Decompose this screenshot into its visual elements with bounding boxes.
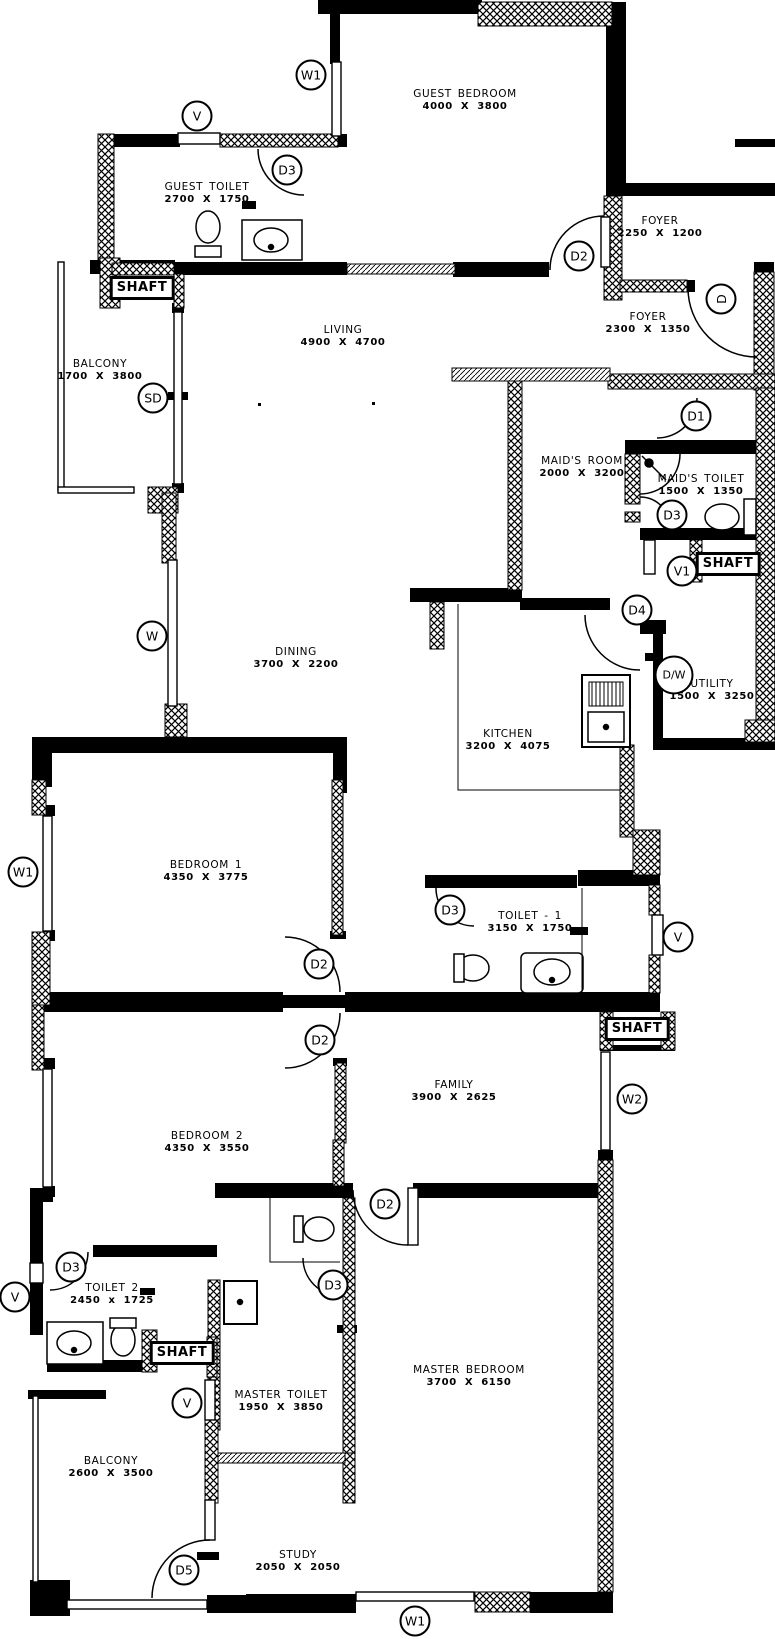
shaft-label: SHAFT: [605, 1017, 670, 1041]
marker-label: D3: [62, 1260, 80, 1275]
door-window-marker: V: [0, 1282, 31, 1313]
room-dimensions: 2250 X 1200: [618, 228, 703, 239]
marker-label: D1: [687, 409, 705, 424]
marker-label: D3: [441, 903, 459, 918]
marker-label: D2: [570, 249, 588, 264]
marker-label: V: [674, 930, 683, 945]
room-label: KITCHEN 3200 X 4075: [466, 728, 551, 752]
room-name: MAID'S ROOM: [540, 455, 625, 467]
door-window-marker: D2: [304, 949, 335, 980]
door-window-marker: D2: [370, 1189, 401, 1220]
door-window-marker: D1: [681, 401, 712, 432]
room-label: FOYER 2250 X 1200: [618, 215, 703, 239]
door-window-marker: D3: [56, 1252, 87, 1283]
room-dimensions: 1500 X 1350: [658, 486, 745, 497]
marker-label: V: [11, 1290, 20, 1305]
shaft-label: SHAFT: [150, 1341, 215, 1365]
room-name: TOILET - 1: [488, 910, 573, 922]
room-label: GUEST TOILET 2700 X 1750: [165, 181, 250, 205]
room-dimensions: 1700 X 3800: [58, 371, 143, 382]
marker-label: W1: [405, 1614, 425, 1629]
door-window-marker: D3: [435, 895, 466, 926]
room-label: FOYER 2300 X 1350: [606, 311, 691, 335]
room-name: BEDROOM 2: [165, 1130, 250, 1142]
door-window-marker: V1: [667, 556, 698, 587]
room-dimensions: 2450 x 1725: [70, 1295, 154, 1306]
room-name: BALCONY: [58, 358, 143, 370]
room-label: MASTER BEDROOM 3700 X 6150: [413, 1364, 525, 1388]
room-dimensions: 3700 X 6150: [413, 1377, 525, 1388]
room-label: TOILET 2 2450 x 1725: [70, 1282, 154, 1306]
door-window-marker: D2: [305, 1025, 336, 1056]
room-dimensions: 4000 X 3800: [413, 101, 516, 112]
room-dimensions: 4350 X 3775: [164, 872, 249, 883]
marker-label: D3: [278, 163, 296, 178]
room-name: FOYER: [618, 215, 703, 227]
room-name: STUDY: [256, 1549, 341, 1561]
door-window-marker: V: [663, 922, 694, 953]
door-window-marker: W: [137, 621, 168, 652]
marker-label: D/W: [662, 669, 685, 682]
room-dimensions: 2600 X 3500: [69, 1468, 154, 1479]
door-window-marker: D2: [564, 241, 595, 272]
room-name: MAID'S TOILET: [658, 473, 745, 485]
room-name: BEDROOM 1: [164, 859, 249, 871]
room-label: GUEST BEDROOM 4000 X 3800: [413, 88, 516, 112]
room-dimensions: 2700 X 1750: [165, 194, 250, 205]
marker-label: D3: [663, 508, 681, 523]
room-label: MAID'S ROOM 2000 X 3200: [540, 455, 625, 479]
room-label: STUDY 2050 X 2050: [256, 1549, 341, 1573]
marker-label: W: [146, 629, 158, 644]
door-window-marker: D: [706, 284, 737, 315]
room-name: DINING: [254, 646, 339, 658]
room-dimensions: 2000 X 3200: [540, 468, 625, 479]
room-dimensions: 1950 X 3850: [234, 1402, 327, 1413]
marker-label: D2: [376, 1197, 394, 1212]
marker-label: SD: [144, 391, 162, 406]
room-dimensions: 3900 X 2625: [412, 1092, 497, 1103]
door-window-marker: D3: [657, 500, 688, 531]
room-label: BALCONY 1700 X 3800: [58, 358, 143, 382]
marker-label: W1: [13, 865, 33, 880]
marker-label: V: [183, 1396, 192, 1411]
room-name: GUEST TOILET: [165, 181, 250, 193]
door-window-marker: W1: [296, 60, 327, 91]
room-dimensions: 2050 X 2050: [256, 1562, 341, 1573]
room-name: TOILET 2: [70, 1282, 154, 1294]
door-window-marker: D3: [318, 1270, 349, 1301]
marker-label: D5: [175, 1563, 193, 1578]
door-window-marker: D3: [272, 155, 303, 186]
door-window-marker: W1: [400, 1606, 431, 1637]
room-label: MAID'S TOILET 1500 X 1350: [658, 473, 745, 497]
room-dimensions: 3200 X 4075: [466, 741, 551, 752]
room-label: LIVING 4900 X 4700: [301, 324, 386, 348]
room-dimensions: 3150 X 1750: [488, 923, 573, 934]
door-window-marker: V: [172, 1388, 203, 1419]
marker-label: D4: [628, 603, 646, 618]
marker-label: D: [713, 294, 728, 304]
room-dimensions: 4350 X 3550: [165, 1143, 250, 1154]
room-label: TOILET - 1 3150 X 1750: [488, 910, 573, 934]
room-name: MASTER TOILET: [234, 1389, 327, 1401]
room-name: LIVING: [301, 324, 386, 336]
room-name: GUEST BEDROOM: [413, 88, 516, 100]
marker-label: W2: [622, 1092, 642, 1107]
door-window-marker: D5: [169, 1555, 200, 1586]
room-label: MASTER TOILET 1950 X 3850: [234, 1389, 327, 1413]
room-name: FOYER: [606, 311, 691, 323]
door-window-marker: D4: [622, 595, 653, 626]
room-name: MASTER BEDROOM: [413, 1364, 525, 1376]
room-name: FAMILY: [412, 1079, 497, 1091]
door-window-marker: SD: [138, 383, 169, 414]
floor-plan: GUEST BEDROOM 4000 X 3800 GUEST TOILET 2…: [0, 0, 775, 1639]
marker-label: D2: [311, 1033, 329, 1048]
door-window-marker: W1: [8, 857, 39, 888]
room-name: BALCONY: [69, 1455, 154, 1467]
marker-label: V1: [674, 564, 691, 579]
room-label: FAMILY 3900 X 2625: [412, 1079, 497, 1103]
room-label: BALCONY 2600 X 3500: [69, 1455, 154, 1479]
room-dimensions: 4900 X 4700: [301, 337, 386, 348]
door-window-marker: V: [182, 101, 213, 132]
room-label: BEDROOM 1 4350 X 3775: [164, 859, 249, 883]
room-dimensions: 3700 X 2200: [254, 659, 339, 670]
room-label: DINING 3700 X 2200: [254, 646, 339, 670]
room-dimensions: 2300 X 1350: [606, 324, 691, 335]
shaft-label: SHAFT: [696, 552, 761, 576]
marker-label: D3: [324, 1278, 342, 1293]
door-window-marker: W2: [617, 1084, 648, 1115]
marker-label: D2: [310, 957, 328, 972]
marker-label: V: [193, 109, 202, 124]
room-name: KITCHEN: [466, 728, 551, 740]
room-label: BEDROOM 2 4350 X 3550: [165, 1130, 250, 1154]
marker-label: W1: [301, 68, 321, 83]
door-window-marker: D/W: [655, 656, 694, 695]
shaft-label: SHAFT: [110, 276, 175, 300]
door-window-markers: W1 V D3 D2 D D1 D3 V1 D4 D/W SD W W1 D2 …: [0, 0, 775, 1639]
